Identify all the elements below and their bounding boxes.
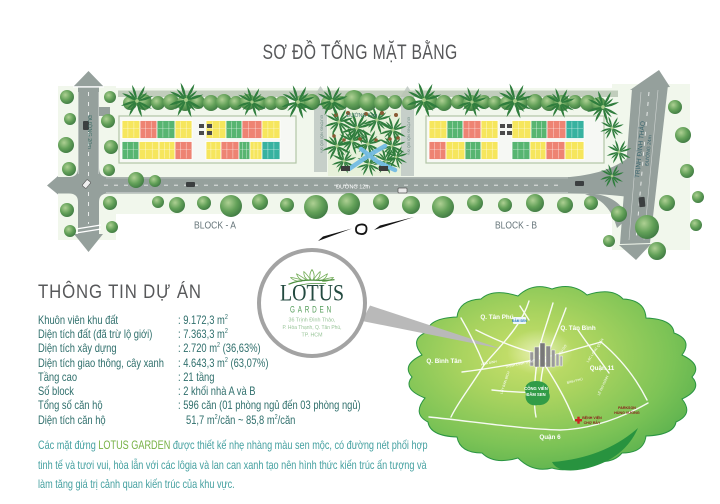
svg-text:Q. Bình Tân: Q. Bình Tân xyxy=(426,358,461,365)
svg-text:BLOCK - B: BLOCK - B xyxy=(495,221,537,232)
svg-text:ĐẦM SEN: ĐẦM SEN xyxy=(526,392,545,397)
svg-text:ĐƯỜNG NỘI BỘ 6m: ĐƯỜNG NỘI BỘ 6m xyxy=(407,117,412,155)
svg-text:ĐẦM SEN: ĐẦM SEN xyxy=(512,319,527,323)
svg-text:ĐƯỜNG 20m: ĐƯỜNG 20m xyxy=(86,115,93,149)
svg-text:LOTUS: LOTUS xyxy=(280,281,344,306)
svg-text:PARKSON: PARKSON xyxy=(618,406,636,410)
svg-text:Quận 11: Quận 11 xyxy=(590,365,615,372)
svg-text:ĐƯỜNG 12m: ĐƯỜNG 12m xyxy=(347,112,378,119)
svg-text:ĐƯỜNG NỘI BỘ 6m: ĐƯỜNG NỘI BỘ 6m xyxy=(320,115,325,153)
svg-text:P. Hòa Thạnh, Q. Tân Phú,: P. Hòa Thạnh, Q. Tân Phú, xyxy=(283,325,342,331)
svg-text:TP. HCM: TP. HCM xyxy=(302,333,323,339)
svg-text:BLOCK - A: BLOCK - A xyxy=(194,221,236,232)
svg-text:CÔNG VIÊN: CÔNG VIÊN xyxy=(524,386,548,391)
svg-text:CHỢ RẪY: CHỢ RẪY xyxy=(584,420,601,425)
svg-text:ĐƯỜNG 12m: ĐƯỜNG 12m xyxy=(336,184,370,191)
svg-text:HÙNG VƯƠNG: HÙNG VƯƠNG xyxy=(614,410,640,415)
svg-text:GARDEN: GARDEN xyxy=(290,305,334,315)
svg-text:BỆNH VIỆN: BỆNH VIỆN xyxy=(582,415,602,420)
svg-text:Quận 6: Quận 6 xyxy=(539,434,561,441)
svg-text:Q. Tân Phú: Q. Tân Phú xyxy=(480,314,513,321)
svg-text:Q. Tân Bình: Q. Tân Bình xyxy=(560,325,595,332)
svg-text:36 Trịnh Đình Thảo,: 36 Trịnh Đình Thảo, xyxy=(289,318,336,324)
